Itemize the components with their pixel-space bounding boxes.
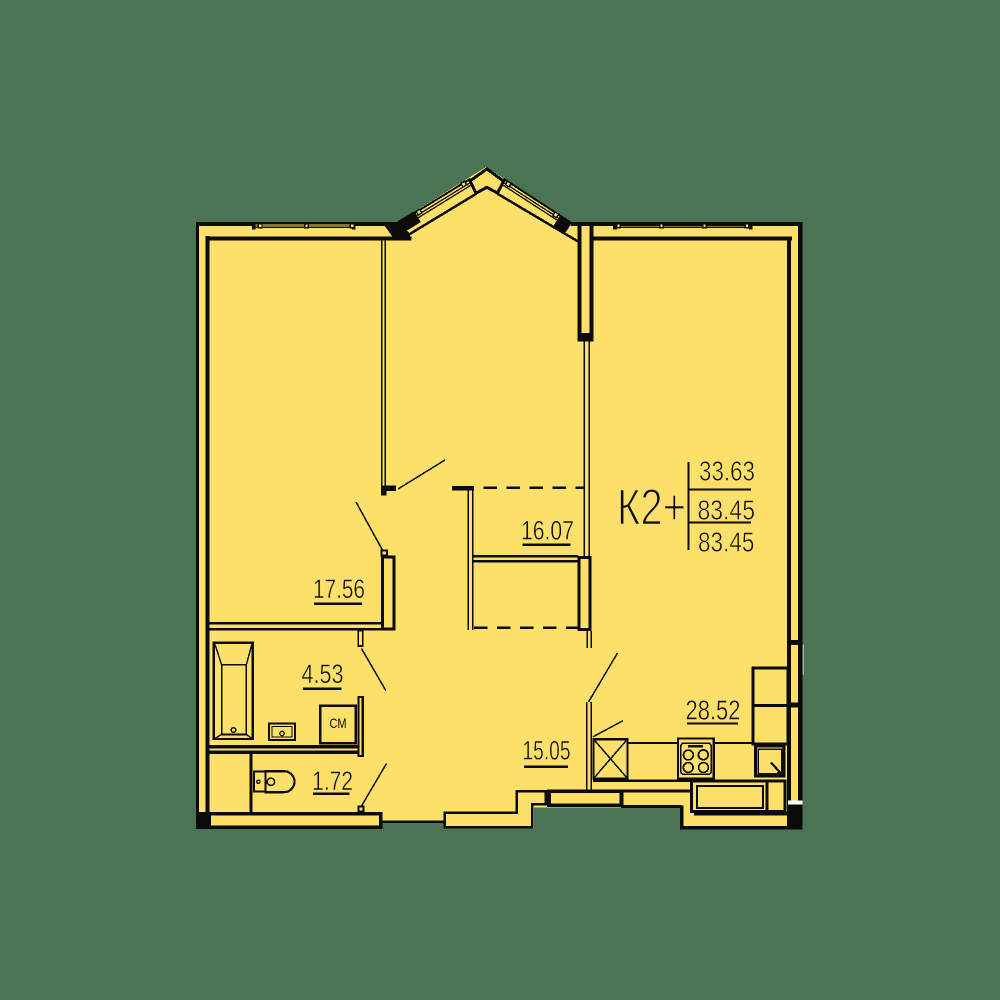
svg-text:1.72: 1.72 (312, 766, 353, 796)
svg-text:16.07: 16.07 (521, 516, 574, 546)
svg-text:4.53: 4.53 (302, 659, 344, 689)
svg-text:СМ: СМ (330, 715, 347, 731)
svg-text:К2+: К2+ (617, 479, 686, 536)
svg-text:28.52: 28.52 (686, 695, 741, 726)
svg-text:33.63: 33.63 (699, 456, 755, 487)
svg-text:15.05: 15.05 (523, 736, 571, 766)
svg-text:83.45: 83.45 (698, 527, 755, 558)
svg-text:83.45: 83.45 (698, 495, 756, 526)
svg-text:17.56: 17.56 (313, 574, 365, 604)
